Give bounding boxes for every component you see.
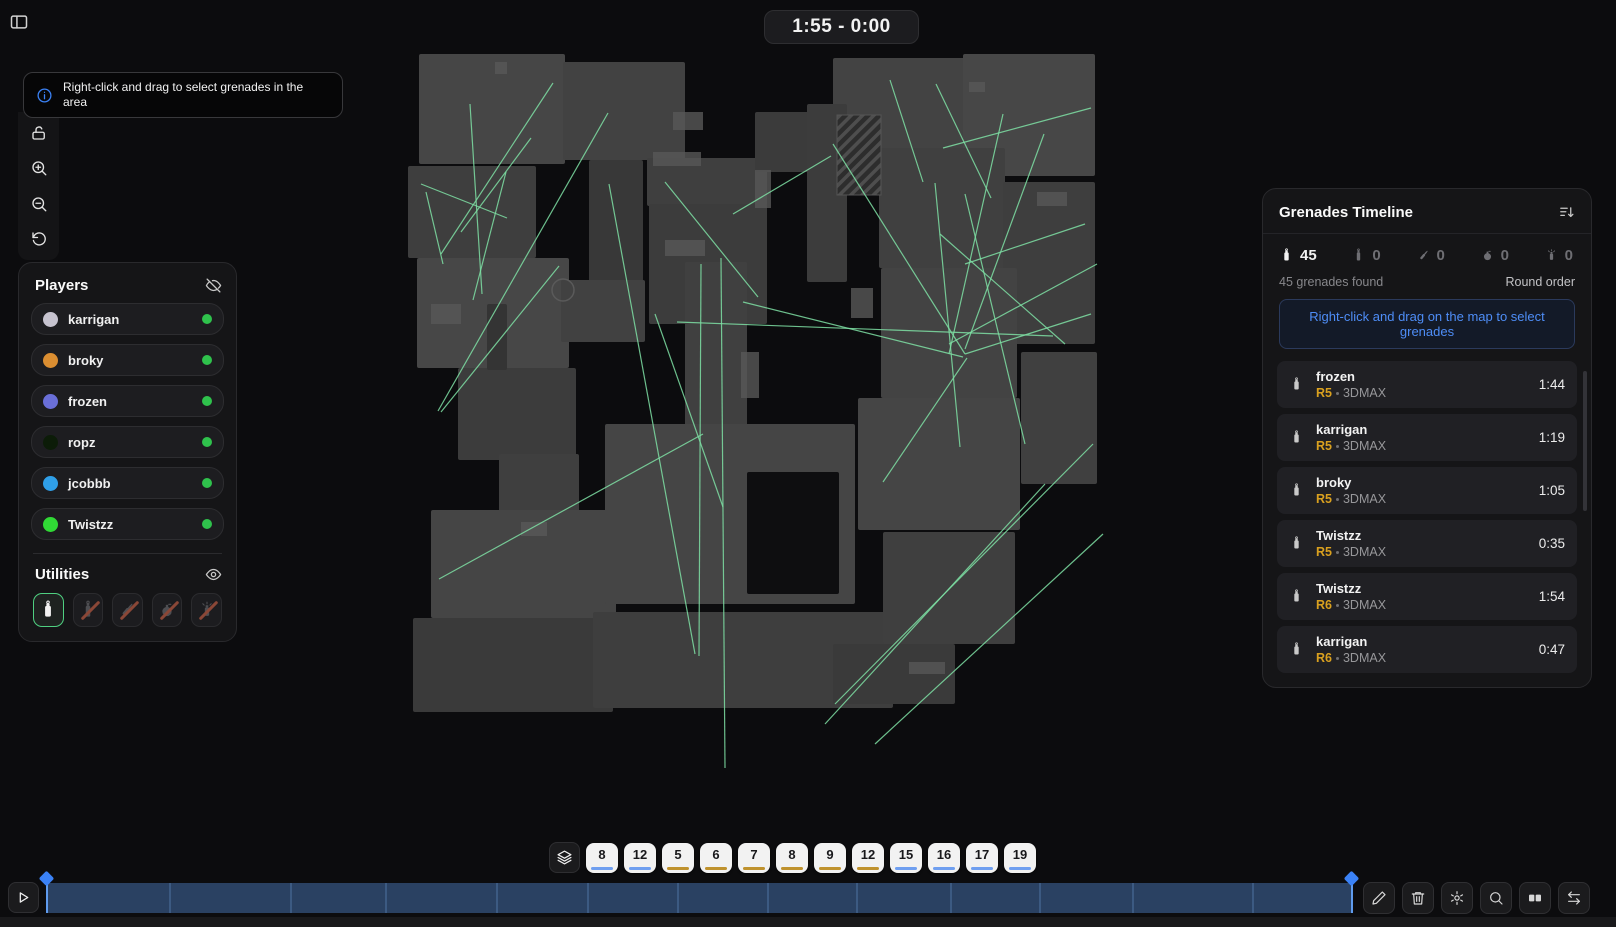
round-chip-9[interactable]: 9 bbox=[814, 843, 846, 873]
player-row-jcobbb[interactable]: jcobbb bbox=[31, 467, 224, 499]
search-button[interactable] bbox=[1480, 882, 1512, 914]
player-row-twistzz[interactable]: Twistzz bbox=[31, 508, 224, 540]
round-side-bar bbox=[819, 867, 841, 870]
player-status-dot bbox=[202, 355, 212, 365]
grenade-item[interactable]: brokyR53DMAX1:05 bbox=[1277, 467, 1577, 514]
timeline-round-divider bbox=[290, 883, 292, 913]
grenade-sub: R53DMAX bbox=[1316, 545, 1386, 559]
flashbang-icon bbox=[1351, 248, 1366, 263]
zoom-in-icon bbox=[30, 159, 48, 177]
round-chip-12[interactable]: 12 bbox=[852, 843, 884, 873]
count-value: 45 bbox=[1300, 247, 1317, 264]
grenade-team: 3DMAX bbox=[1343, 439, 1386, 453]
grenade-list: frozenR53DMAX1:44karriganR53DMAX1:19brok… bbox=[1263, 361, 1591, 687]
count-value: 0 bbox=[1372, 247, 1380, 264]
round-number: 16 bbox=[928, 847, 960, 862]
grenade-round: R5 bbox=[1316, 386, 1332, 400]
grenade-item[interactable]: frozenR53DMAX1:44 bbox=[1277, 361, 1577, 408]
round-number: 8 bbox=[776, 847, 808, 862]
grenade-team: 3DMAX bbox=[1343, 651, 1386, 665]
grenades-header: Grenades Timeline bbox=[1263, 189, 1591, 234]
round-number: 8 bbox=[586, 847, 618, 862]
scrollbar-thumb[interactable] bbox=[1583, 371, 1587, 511]
timeline-round-divider bbox=[1132, 883, 1134, 913]
player-name: ropz bbox=[68, 435, 95, 450]
dot-separator bbox=[1336, 498, 1339, 501]
grenade-team: 3DMAX bbox=[1343, 492, 1386, 506]
round-side-bar bbox=[971, 867, 993, 870]
smoke-filter-button[interactable] bbox=[33, 593, 64, 627]
grenade-time: 1:54 bbox=[1539, 589, 1565, 604]
search-icon bbox=[1488, 890, 1504, 906]
grenade-info: karriganR63DMAX bbox=[1316, 634, 1386, 665]
grenade-round: R5 bbox=[1316, 545, 1332, 559]
player-color-dot bbox=[43, 517, 58, 532]
player-name: karrigan bbox=[68, 312, 119, 327]
grenade-player: frozen bbox=[1316, 369, 1386, 384]
timeline-round-divider bbox=[496, 883, 498, 913]
dot-separator bbox=[1336, 445, 1339, 448]
player-color-dot bbox=[43, 353, 58, 368]
dot-separator bbox=[1336, 657, 1339, 660]
player-row-frozen[interactable]: frozen bbox=[31, 385, 224, 417]
player-row-karrigan[interactable]: karrigan bbox=[31, 303, 224, 335]
round-number: 9 bbox=[814, 847, 846, 862]
round-number: 6 bbox=[700, 847, 732, 862]
unlock-icon bbox=[30, 124, 48, 142]
switch-button[interactable] bbox=[1558, 882, 1590, 914]
grenade-type-counts: 450000 bbox=[1263, 234, 1591, 270]
smoke-icon bbox=[38, 600, 58, 620]
zoom-out-button[interactable] bbox=[24, 189, 54, 219]
utilities-filter-row bbox=[31, 593, 224, 629]
delete-icon bbox=[1410, 890, 1426, 906]
round-timer: 1:55 - 0:00 bbox=[764, 10, 919, 44]
switch-icon bbox=[1566, 890, 1582, 906]
player-row-broky[interactable]: broky bbox=[31, 344, 224, 376]
grenade-item[interactable]: TwistzzR63DMAX1:54 bbox=[1277, 573, 1577, 620]
flashbang-filter-button[interactable] bbox=[73, 593, 104, 627]
count-value: 0 bbox=[1437, 247, 1445, 264]
round-number: 15 bbox=[890, 847, 922, 862]
tooltip-text: Right-click and drag to select grenades … bbox=[63, 80, 330, 110]
grenade-team: 3DMAX bbox=[1343, 386, 1386, 400]
reset-icon bbox=[30, 230, 48, 248]
timeline-round-divider bbox=[767, 883, 769, 913]
player-name: frozen bbox=[68, 394, 107, 409]
round-chip-8[interactable]: 8 bbox=[586, 843, 618, 873]
info-icon bbox=[36, 87, 53, 104]
smoke-icon bbox=[1289, 377, 1304, 392]
smoke-count-toggle[interactable]: 45 bbox=[1279, 247, 1317, 264]
grenade-sub: R53DMAX bbox=[1316, 386, 1386, 400]
info-icon bbox=[36, 87, 53, 104]
dot-separator bbox=[1336, 551, 1339, 554]
eye-icon bbox=[205, 566, 222, 583]
timeline-bar[interactable] bbox=[46, 883, 1353, 913]
round-order-label: Round order bbox=[1506, 275, 1576, 289]
bottom-toolbar bbox=[1363, 882, 1590, 914]
panel-divider bbox=[33, 553, 222, 554]
player-color-dot bbox=[43, 394, 58, 409]
edit-icon bbox=[1371, 890, 1387, 906]
unlock-button[interactable] bbox=[24, 118, 54, 148]
utilities-title: Utilities bbox=[35, 566, 89, 583]
utilities-visibility-toggle[interactable] bbox=[205, 566, 222, 583]
molotov-icon bbox=[1416, 248, 1431, 263]
grenade-team: 3DMAX bbox=[1343, 545, 1386, 559]
play-button[interactable] bbox=[8, 882, 39, 913]
round-chip-17[interactable]: 17 bbox=[966, 843, 998, 873]
grenade-item[interactable]: TwistzzR53DMAX0:35 bbox=[1277, 520, 1577, 567]
sort-order-button[interactable] bbox=[1558, 204, 1575, 221]
round-chip-19[interactable]: 19 bbox=[1004, 843, 1036, 873]
layers-icon bbox=[556, 849, 573, 866]
grenade-player: broky bbox=[1316, 475, 1386, 490]
count-value: 0 bbox=[1565, 247, 1573, 264]
clips-button[interactable] bbox=[1519, 882, 1551, 914]
grenades-found-label: 45 grenades found bbox=[1279, 275, 1383, 289]
grenade-team: 3DMAX bbox=[1343, 598, 1386, 612]
round-chip-12[interactable]: 12 bbox=[624, 843, 656, 873]
grenade-info: karriganR53DMAX bbox=[1316, 422, 1386, 453]
smoke-icon bbox=[1279, 248, 1294, 263]
timeline-round-divider bbox=[385, 883, 387, 913]
grenade-time: 1:05 bbox=[1539, 483, 1565, 498]
player-name: jcobbb bbox=[68, 476, 111, 491]
player-name: Twistzz bbox=[68, 517, 113, 532]
round-side-bar bbox=[1009, 867, 1031, 870]
smoke-icon bbox=[1289, 642, 1304, 657]
grenades-timeline-panel: Grenades Timeline 450000 45 grenades fou… bbox=[1262, 188, 1592, 688]
clips-icon bbox=[1527, 890, 1543, 906]
map-hint-tooltip: Right-click and drag to select grenades … bbox=[23, 72, 343, 118]
timer-text: 1:55 - 0:00 bbox=[792, 16, 890, 38]
delete-button[interactable] bbox=[1402, 882, 1434, 914]
edit-button[interactable] bbox=[1363, 882, 1395, 914]
grenade-player: karrigan bbox=[1316, 634, 1386, 649]
round-number: 17 bbox=[966, 847, 998, 862]
flashbang-count-toggle[interactable]: 0 bbox=[1351, 247, 1380, 264]
sidebar-toggle-button[interactable] bbox=[9, 12, 29, 32]
round-chip-16[interactable]: 16 bbox=[928, 843, 960, 873]
player-name: broky bbox=[68, 353, 103, 368]
zoom-in-button[interactable] bbox=[24, 153, 54, 183]
round-number: 5 bbox=[662, 847, 694, 862]
map-toolbar bbox=[18, 112, 59, 260]
round-side-bar bbox=[895, 867, 917, 870]
grenade-info: brokyR53DMAX bbox=[1316, 475, 1386, 506]
smoke-icon bbox=[1289, 430, 1304, 445]
player-status-dot bbox=[202, 478, 212, 488]
round-side-bar bbox=[705, 867, 727, 870]
layers-button[interactable] bbox=[549, 842, 580, 873]
grenade-item[interactable]: karriganR63DMAX0:47 bbox=[1277, 626, 1577, 673]
round-side-bar bbox=[781, 867, 803, 870]
rounds-chips: 812567891215161719 bbox=[586, 843, 1036, 873]
grenades-summary-row: 45 grenades found Round order bbox=[1263, 270, 1591, 299]
grenade-player: karrigan bbox=[1316, 422, 1386, 437]
timeline-round-divider bbox=[169, 883, 171, 913]
grenade-round: R5 bbox=[1316, 439, 1332, 453]
timeline-round-divider bbox=[587, 883, 589, 913]
utilities-header: Utilities bbox=[31, 564, 224, 583]
players-header: Players bbox=[31, 275, 224, 294]
grenade-sub: R53DMAX bbox=[1316, 492, 1386, 506]
smoke-icon bbox=[1289, 483, 1304, 498]
grenade-info: frozenR53DMAX bbox=[1316, 369, 1386, 400]
grenade-sub: R63DMAX bbox=[1316, 598, 1386, 612]
player-color-dot bbox=[43, 476, 58, 491]
round-side-bar bbox=[667, 867, 689, 870]
player-row-ropz[interactable]: ropz bbox=[31, 426, 224, 458]
round-chip-5[interactable]: 5 bbox=[662, 843, 694, 873]
reset-button[interactable] bbox=[24, 224, 54, 254]
round-side-bar bbox=[591, 867, 613, 870]
rounds-bar: 812567891215161719 bbox=[549, 842, 1036, 873]
grenade-time: 0:35 bbox=[1539, 536, 1565, 551]
smoke-icon bbox=[1289, 589, 1304, 604]
round-side-bar bbox=[629, 867, 651, 870]
play-icon bbox=[15, 889, 32, 906]
timeline-round-divider bbox=[856, 883, 858, 913]
round-chip-7[interactable]: 7 bbox=[738, 843, 770, 873]
grenade-sub: R53DMAX bbox=[1316, 439, 1386, 453]
grenade-time: 1:44 bbox=[1539, 377, 1565, 392]
he-grenade-count-toggle[interactable]: 0 bbox=[1480, 247, 1509, 264]
round-side-bar bbox=[933, 867, 955, 870]
player-color-dot bbox=[43, 435, 58, 450]
map-view[interactable] bbox=[403, 52, 1100, 732]
round-number: 7 bbox=[738, 847, 770, 862]
grenade-round: R6 bbox=[1316, 651, 1332, 665]
grenade-info: TwistzzR63DMAX bbox=[1316, 581, 1386, 612]
timeline-round-divider bbox=[677, 883, 679, 913]
timeline-round-divider bbox=[950, 883, 952, 913]
player-status-dot bbox=[202, 437, 212, 447]
grenade-time: 1:19 bbox=[1539, 430, 1565, 445]
grenades-title: Grenades Timeline bbox=[1279, 204, 1413, 221]
settings-icon bbox=[1449, 890, 1465, 906]
grenade-info: TwistzzR53DMAX bbox=[1316, 528, 1386, 559]
count-value: 0 bbox=[1501, 247, 1509, 264]
sort-desc-icon bbox=[1558, 204, 1575, 221]
player-status-dot bbox=[202, 519, 212, 529]
round-chip-15[interactable]: 15 bbox=[890, 843, 922, 873]
settings-button[interactable] bbox=[1441, 882, 1473, 914]
round-chip-8[interactable]: 8 bbox=[776, 843, 808, 873]
eye-off-icon bbox=[205, 277, 222, 294]
decoy-count-toggle[interactable]: 0 bbox=[1544, 247, 1573, 264]
round-number: 12 bbox=[852, 847, 884, 862]
player-status-dot bbox=[202, 314, 212, 324]
round-chip-6[interactable]: 6 bbox=[700, 843, 732, 873]
grenade-sub: R63DMAX bbox=[1316, 651, 1386, 665]
round-number: 19 bbox=[1004, 847, 1036, 862]
decoy-icon bbox=[1544, 248, 1559, 263]
he-grenade-filter-button[interactable] bbox=[152, 593, 183, 627]
molotov-filter-button[interactable] bbox=[112, 593, 143, 627]
timeline-round-divider bbox=[1252, 883, 1254, 913]
round-number: 12 bbox=[624, 847, 656, 862]
players-panel: Players karriganbrokyfrozenropzjcobbbTwi… bbox=[18, 262, 237, 642]
footer-strip bbox=[0, 917, 1616, 927]
dot-separator bbox=[1336, 392, 1339, 395]
grenade-round: R5 bbox=[1316, 492, 1332, 506]
players-visibility-toggle[interactable] bbox=[205, 277, 222, 294]
round-side-bar bbox=[743, 867, 765, 870]
player-status-dot bbox=[202, 396, 212, 406]
zoom-out-icon bbox=[30, 195, 48, 213]
grenade-time: 0:47 bbox=[1539, 642, 1565, 657]
smoke-icon bbox=[1289, 536, 1304, 551]
decoy-filter-button[interactable] bbox=[191, 593, 222, 627]
map-radar bbox=[403, 52, 1100, 732]
molotov-count-toggle[interactable]: 0 bbox=[1416, 247, 1445, 264]
grenade-player: Twistzz bbox=[1316, 528, 1386, 543]
player-color-dot bbox=[43, 312, 58, 327]
grenade-round: R6 bbox=[1316, 598, 1332, 612]
round-side-bar bbox=[857, 867, 879, 870]
timeline-round-divider bbox=[1039, 883, 1041, 913]
grenade-player: Twistzz bbox=[1316, 581, 1386, 596]
panel-left-icon bbox=[9, 12, 29, 32]
he-grenade-icon bbox=[1480, 248, 1495, 263]
select-grenades-hint: Right-click and drag on the map to selec… bbox=[1279, 299, 1575, 349]
players-title: Players bbox=[35, 277, 88, 294]
players-list: karriganbrokyfrozenropzjcobbbTwistzz bbox=[31, 303, 224, 540]
dot-separator bbox=[1336, 604, 1339, 607]
grenade-item[interactable]: karriganR53DMAX1:19 bbox=[1277, 414, 1577, 461]
